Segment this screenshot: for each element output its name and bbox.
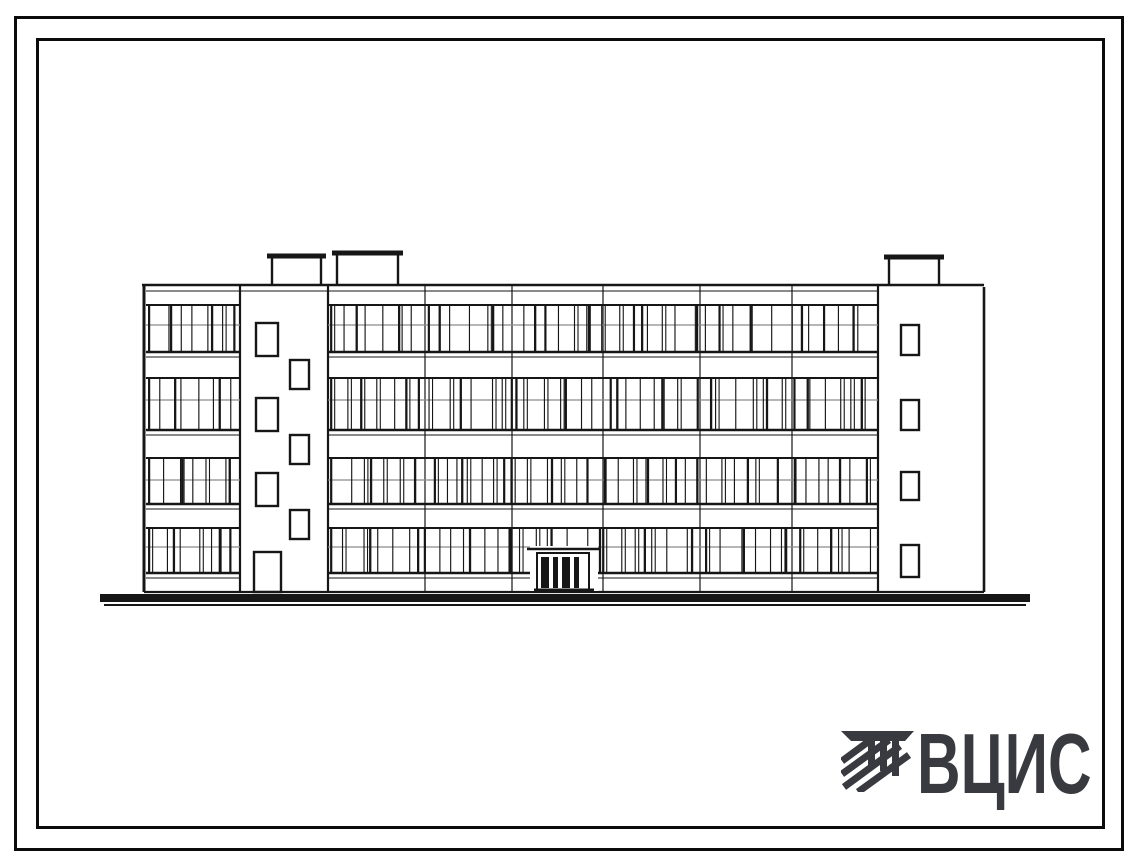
building-elevation-drawing xyxy=(0,0,1134,863)
drawing-sheet: ВЦИС xyxy=(0,0,1134,863)
